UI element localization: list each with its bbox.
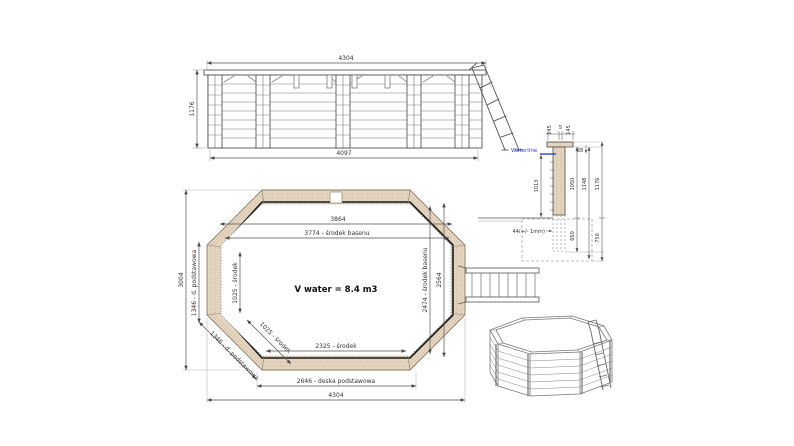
section-dim-cap-thickness: 28	[577, 148, 583, 154]
elevation-dim-bottom: 4097	[336, 150, 351, 157]
plan-dim-1346-left: 1346 - d. podstawowa	[191, 249, 198, 316]
plan-dim-3774: 3774 - środek basenu	[304, 230, 369, 237]
section-top-rail	[547, 142, 573, 147]
section-dim-1050: 1050	[570, 178, 576, 191]
elevation-dim-top: 4304	[338, 55, 353, 62]
plan-dim-3864: 3864	[330, 216, 345, 223]
plan-dim-2474: 2474 - środek basenu	[422, 247, 429, 312]
section-dim-44: 44(+/- 1mm)	[513, 229, 546, 235]
section-view: 145 5 145 28 Waterline 1013	[478, 125, 605, 261]
section-dim-750: 750	[595, 233, 601, 243]
plan-dim-4304: 4304	[328, 392, 343, 399]
section-dim-cap-right: 145	[566, 125, 572, 135]
perspective-rim-outer	[490, 316, 612, 354]
drawing-canvas: 4304	[0, 0, 794, 446]
plan-skimmer-mark	[330, 192, 342, 203]
plan-volume-label: V water = 8.4 m3	[295, 285, 378, 295]
plan-ladder	[458, 266, 539, 304]
section-wall	[553, 147, 565, 215]
plan-dim-2325: 2325 - środek	[315, 343, 357, 350]
section-dim-1013: 1013	[534, 180, 540, 193]
section-dim-1148: 1148	[582, 178, 588, 191]
section-waterline-label: Waterline	[511, 148, 538, 154]
plan-dim-2646: 2646 - deska podstawowa	[297, 378, 376, 385]
section-dim-cap-gap: 5	[559, 125, 562, 131]
elevation-view: 4304	[189, 55, 522, 161]
pool-technical-drawing: 4304	[0, 0, 794, 446]
plan-dim-3004: 3004	[178, 272, 185, 287]
section-dim-650: 650	[570, 231, 576, 241]
plan-dim-2564: 2564	[436, 272, 443, 287]
plan-pool-interior	[221, 204, 451, 356]
elevation-top-rail	[204, 70, 486, 75]
perspective-view	[490, 316, 612, 396]
elevation-dim-left: 1176	[189, 101, 196, 116]
plan-dim-1025-left: 1025 - środek	[232, 262, 239, 304]
section-dim-cap-left: 145	[547, 125, 553, 135]
plan-view: V water = 8.4 m3 3864 3774 - środek base…	[178, 190, 539, 403]
section-dim-1176: 1176	[595, 178, 601, 191]
